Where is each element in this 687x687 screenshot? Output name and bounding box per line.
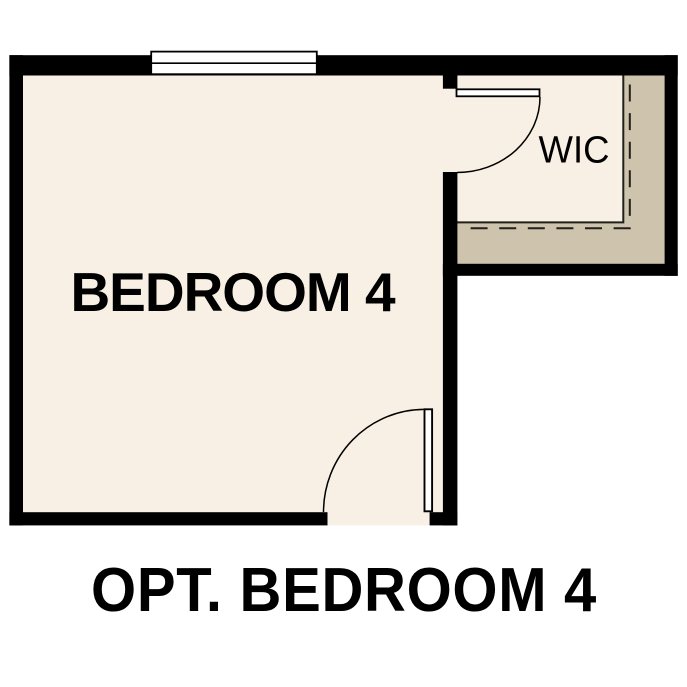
svg-text:WIC: WIC: [539, 128, 610, 171]
svg-text:OPT. BEDROOM 4: OPT. BEDROOM 4: [91, 555, 597, 624]
svg-text:BEDROOM 4: BEDROOM 4: [70, 261, 396, 323]
